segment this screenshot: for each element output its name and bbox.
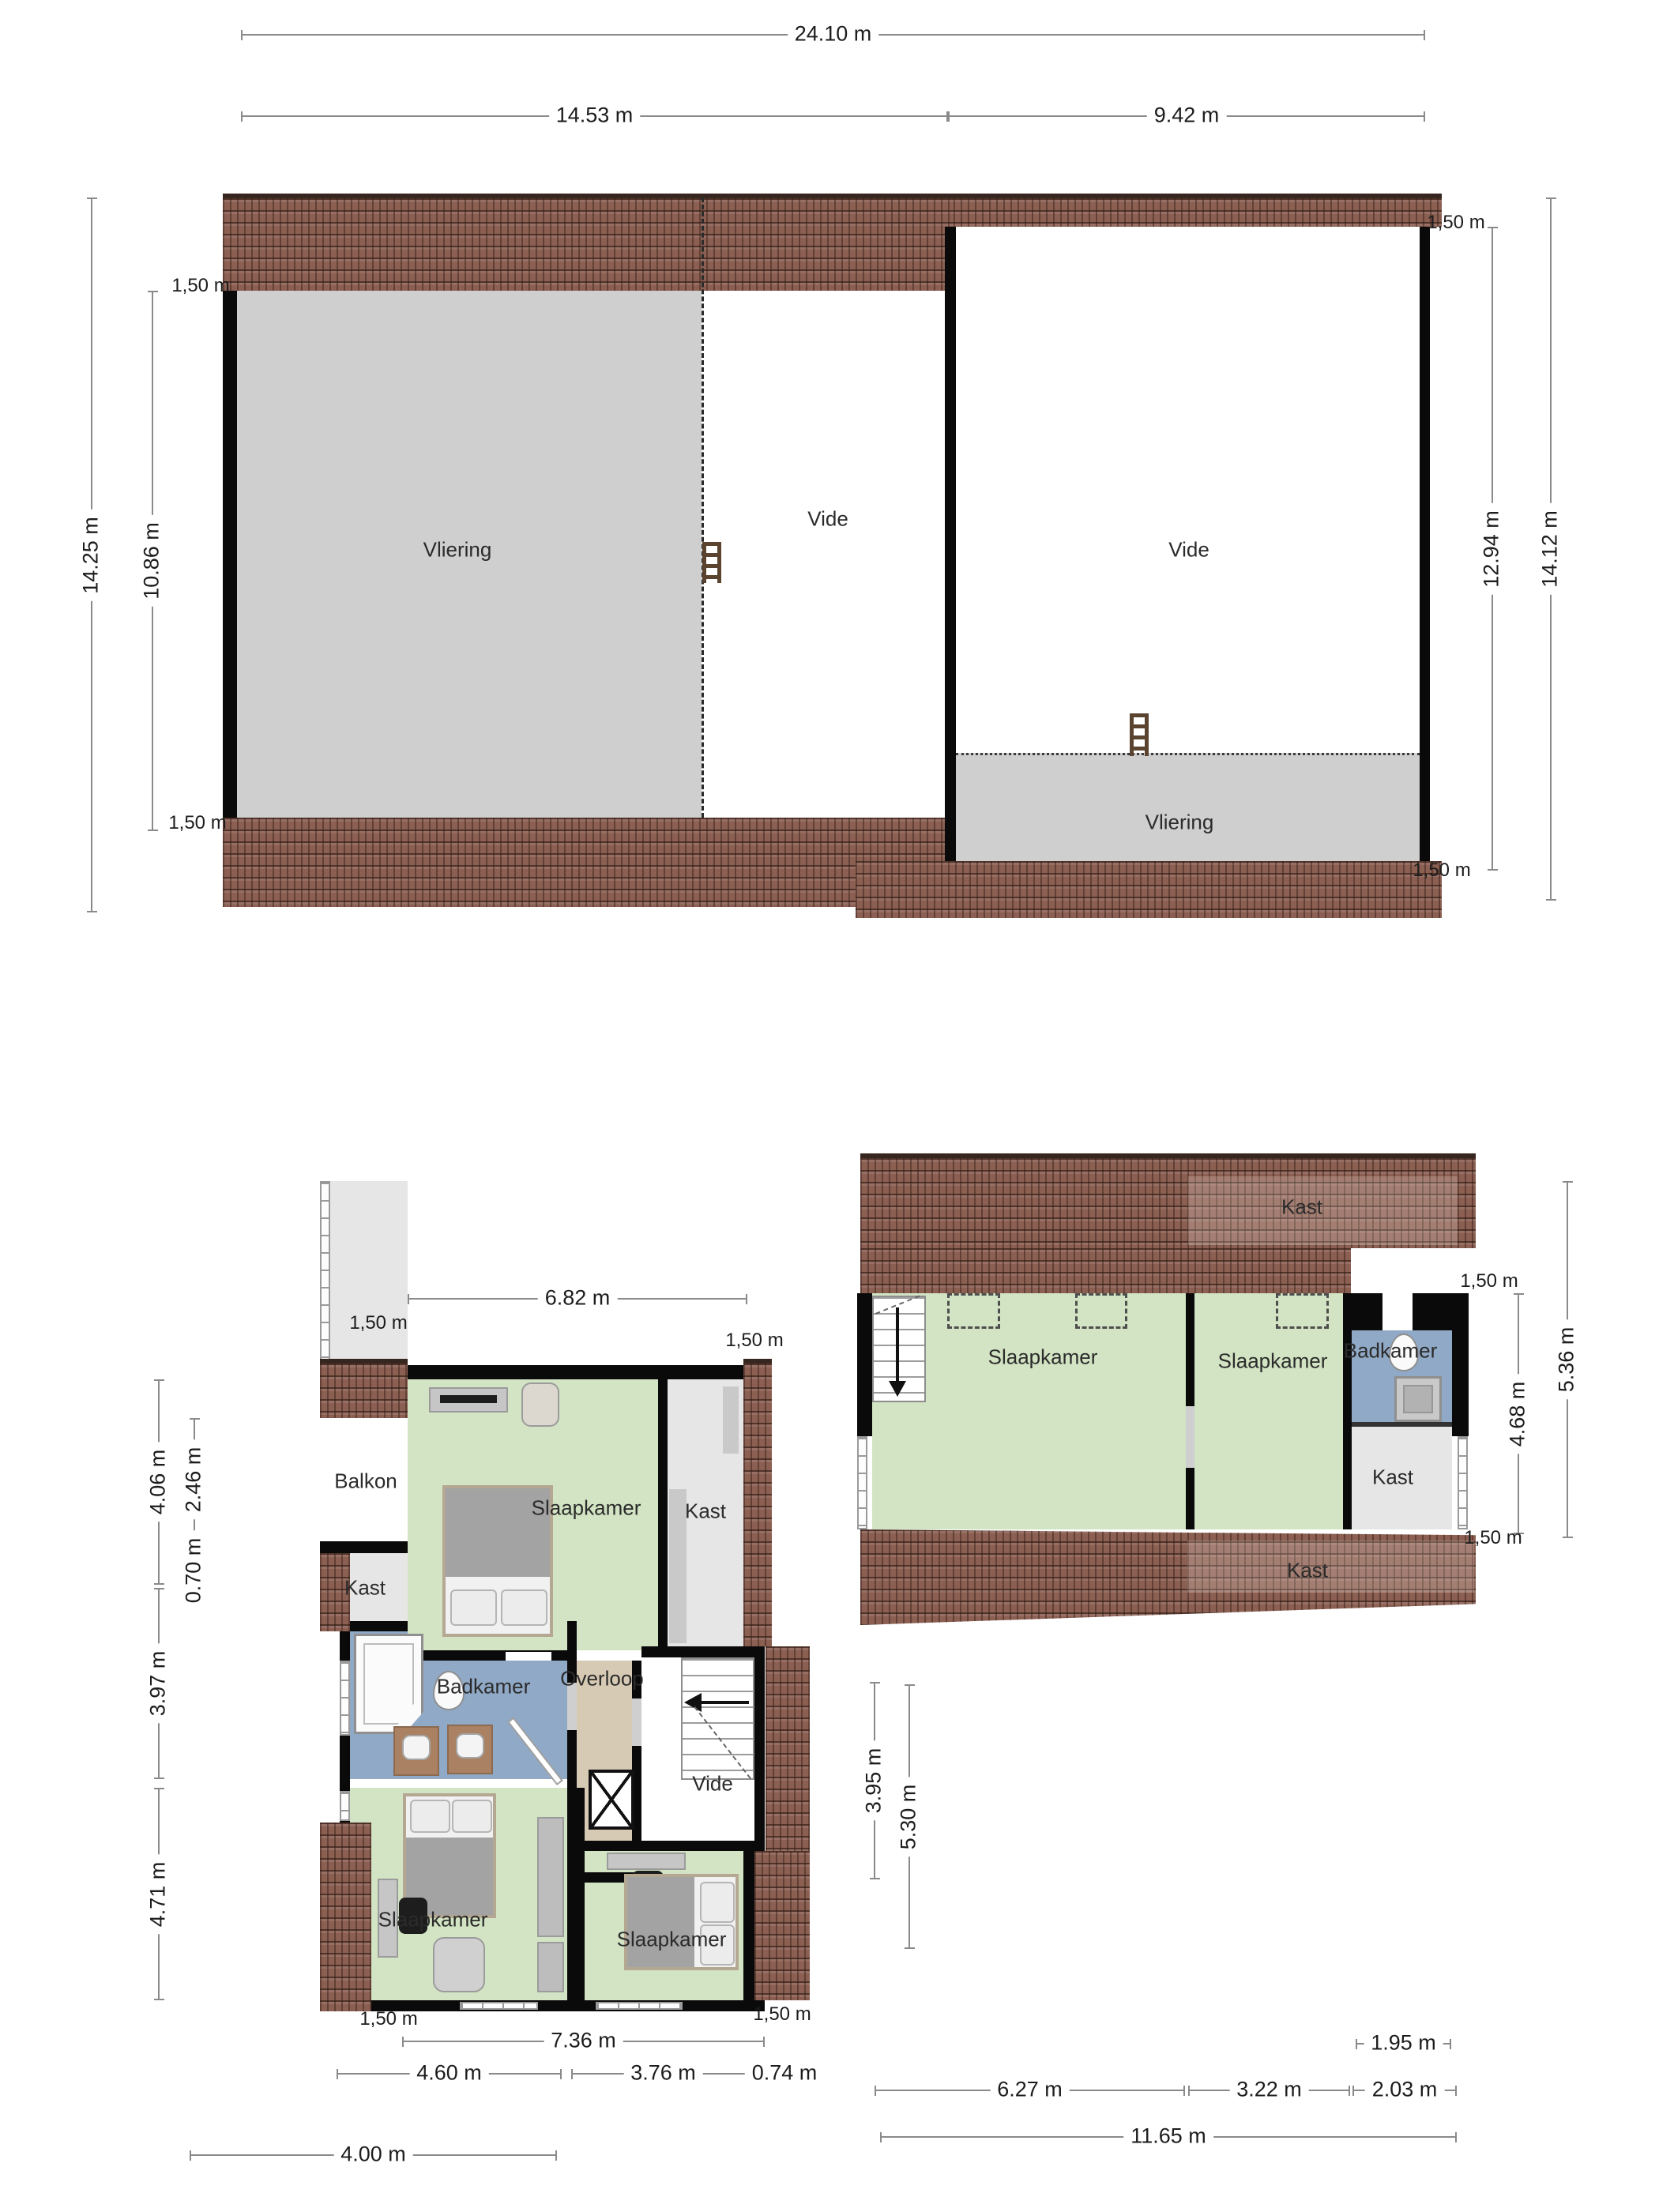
dimension-label: 9.42 m — [1147, 103, 1227, 129]
roof-band-lower — [860, 1248, 1351, 1293]
bathroom-entry — [1351, 1248, 1469, 1293]
dimension-label: 6.82 m — [538, 1285, 618, 1311]
dimension-label: 4.68 m — [1505, 1374, 1531, 1454]
clearance-label: 1,50 m — [171, 275, 229, 297]
wardrobe — [537, 1817, 564, 1937]
dimension-label: 2.46 m — [181, 1440, 207, 1520]
dimension-label: 3.95 m — [861, 1741, 887, 1821]
dimension-label: 4.00 m — [333, 2142, 413, 2168]
attic-wall-junction — [945, 227, 956, 861]
dimension-label: 5.36 m — [1554, 1320, 1580, 1400]
dimension-label: 4.60 m — [409, 2060, 489, 2086]
room-label: Vide — [1168, 538, 1209, 562]
wall — [1413, 1293, 1452, 1330]
room-label: Slaapkamer — [988, 1345, 1098, 1370]
dimension-label: 3.97 m — [145, 1644, 171, 1724]
attic-vide-divider — [702, 197, 704, 818]
attic-roof-top-left — [223, 194, 954, 291]
room-label: Badkamer — [437, 1675, 531, 1699]
room-label: Slaapkamer — [532, 1496, 641, 1521]
wall — [1343, 1293, 1352, 1529]
dimension-label: 4.71 m — [145, 1854, 171, 1934]
wall — [567, 1788, 585, 2000]
wall — [743, 1841, 754, 2000]
window — [1458, 1436, 1468, 1529]
dimension-label: 14.53 m — [549, 103, 641, 129]
dimension-label: 14.25 m — [78, 510, 104, 601]
wall — [857, 1293, 872, 1436]
room-label: Vliering — [1145, 811, 1214, 835]
roof-dormer-kast — [1188, 1176, 1458, 1245]
dimension-label: 14.12 m — [1537, 503, 1563, 595]
armchair — [433, 1937, 485, 1992]
bath-closet-divider — [1352, 1422, 1452, 1427]
door-gap — [1186, 1406, 1194, 1468]
clearance-label: 1,50 m — [1464, 1527, 1522, 1549]
stair-direction-arrow — [889, 1381, 906, 1397]
room-label: Kast — [1287, 1559, 1328, 1583]
room-label: Balkon — [334, 1469, 397, 1494]
clearance-label: 1,50 m — [349, 1312, 407, 1334]
room-label: Vliering — [423, 538, 492, 562]
wall — [1452, 1293, 1469, 1436]
dimension-label: 3.76 m — [623, 2060, 703, 2086]
room-label: Kast — [1281, 1195, 1322, 1220]
window — [596, 2002, 683, 2010]
room-label: Slaapkamer — [617, 1928, 727, 1952]
room-label: Kast — [344, 1576, 386, 1601]
room-label: Badkamer — [1344, 1339, 1438, 1364]
skylight — [947, 1293, 1000, 1329]
attic-roof-top-right — [954, 194, 1442, 227]
room-label: Vide — [692, 1772, 733, 1796]
roof-dormer-kast-bottom — [1187, 1540, 1474, 1593]
attic-wall-left — [223, 291, 237, 818]
dimension-label: 0.74 m — [745, 2060, 825, 2086]
window — [460, 2002, 538, 2010]
attic-plan — [0, 0, 1659, 948]
loft-ladder-icon — [1130, 713, 1149, 756]
clearance-label: 1,50 m — [1460, 1270, 1518, 1292]
dimension-label: 7.36 m — [544, 2028, 623, 2054]
clearance-label: 1,50 m — [359, 2008, 417, 2030]
room-vliering-right — [956, 753, 1420, 861]
dimension-label: 5.30 m — [896, 1777, 922, 1856]
dimension-label: 24.10 m — [788, 21, 879, 47]
clearance-label: 1,50 m — [725, 1330, 783, 1352]
desk — [607, 1853, 686, 1870]
dimension-label: 0.70 m — [181, 1531, 207, 1611]
clearance-label: 1,50 m — [1427, 212, 1484, 234]
loft-ladder-icon — [702, 542, 721, 583]
shower-tray — [1394, 1376, 1442, 1422]
room-label: Kast — [685, 1499, 726, 1524]
window — [857, 1436, 867, 1529]
wall — [340, 1736, 350, 1791]
dimension-label: 6.27 m — [990, 2077, 1070, 2103]
attic-roof-bottom-right — [856, 861, 1442, 918]
first-floor-right-plan — [0, 1106, 1659, 1738]
room-vide-left — [702, 291, 945, 818]
room-label: Overloop — [560, 1667, 644, 1691]
dimension-label: 11.65 m — [1123, 2124, 1213, 2150]
dimension-label: 12.94 m — [1479, 503, 1505, 595]
dimension-label: 10.86 m — [139, 515, 165, 607]
wall — [577, 1841, 754, 1851]
dimension-label: 3.22 m — [1229, 2077, 1309, 2103]
attic-roof-bottom-left — [223, 818, 954, 907]
clearance-label: 1,50 m — [753, 2003, 811, 2026]
skylight — [1276, 1293, 1329, 1329]
roof-block — [320, 1823, 371, 2011]
elevator-shaft — [589, 1770, 634, 1830]
dimension-label: 4.06 m — [145, 1443, 171, 1522]
dimension-label: 1.95 m — [1364, 2030, 1443, 2056]
room-label: Vide — [807, 507, 848, 532]
cabinet — [537, 1942, 564, 1992]
skylight — [1075, 1293, 1127, 1329]
clearance-label: 1,50 m — [1413, 860, 1470, 882]
room-label: Slaapkamer — [378, 1908, 488, 1932]
window — [340, 1791, 350, 1821]
dimension-label: 2.03 m — [1365, 2077, 1445, 2103]
clearance-label: 1,50 m — [168, 812, 226, 834]
floorplan-sheet: { "sheet": {"width": 2100, "height": 280… — [0, 0, 1659, 2212]
stair-arrow-line — [896, 1307, 899, 1382]
attic-wall-right — [1420, 227, 1430, 861]
roof-block — [754, 1851, 810, 2000]
room-label: Kast — [1372, 1465, 1413, 1490]
wall — [1352, 1293, 1382, 1330]
double-bed — [624, 1874, 739, 1970]
room-vide-right — [956, 227, 1420, 753]
room-label: Slaapkamer — [1218, 1349, 1328, 1374]
